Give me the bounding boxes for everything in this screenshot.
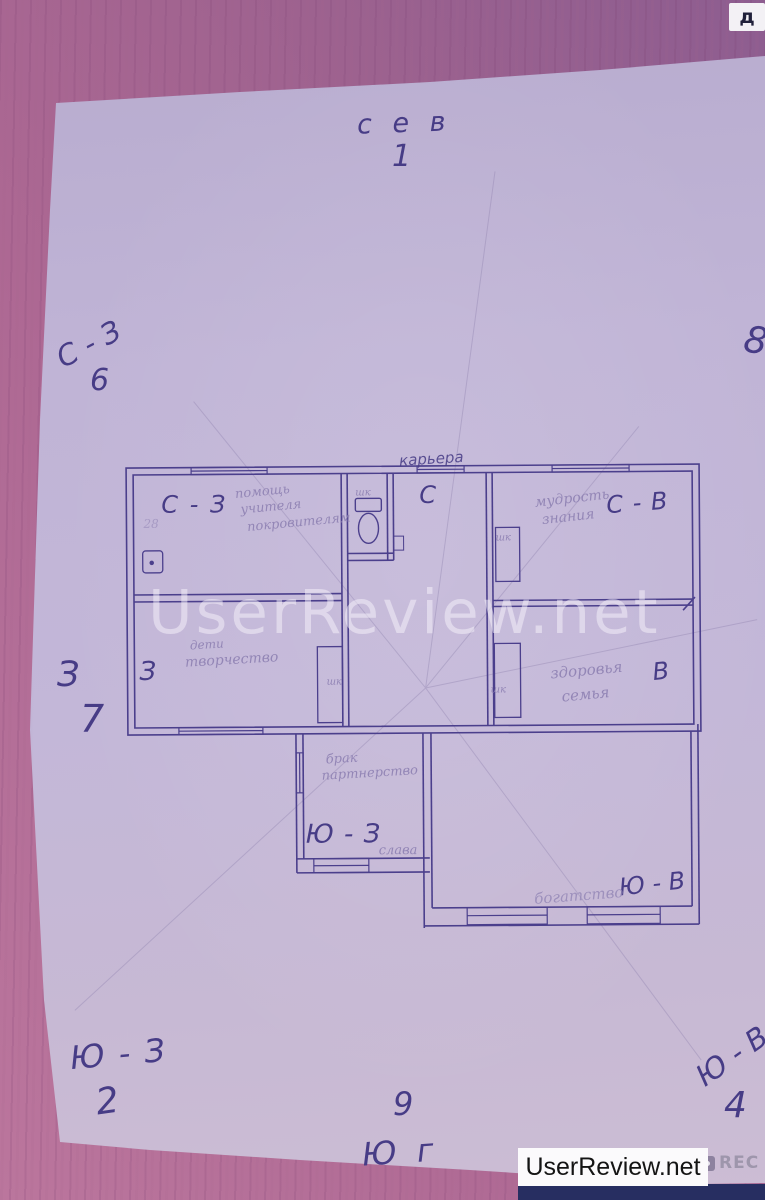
room-sw-sector: Ю - З (306, 819, 382, 850)
north-letter: С (419, 481, 436, 509)
compass-south-word: Ю г (361, 1133, 440, 1170)
career-label: карьера (399, 448, 465, 470)
room-ne-sector: С - В (605, 487, 669, 520)
compass-southeast-number: 4 (724, 1088, 747, 1124)
room-ne-meaning-2: знания (541, 506, 595, 528)
center-watermark: UserReview.net (148, 577, 661, 648)
room-e-meaning-1: здоровья (550, 658, 624, 683)
toilet-icon (355, 498, 381, 543)
room-e-sector: В (651, 656, 670, 686)
room-se-sector: Ю - В (618, 866, 687, 901)
corner-letter-box: д (729, 3, 765, 31)
room-e-meaning-2: семья (561, 683, 610, 705)
room-nw-note: 28 (142, 517, 159, 531)
compass-northwest-number: 6 (90, 366, 109, 396)
room-nw-sector: С - З (161, 490, 227, 518)
room-w-meaning-2: творчество (184, 649, 278, 671)
closet-label-bathroom: шк (355, 487, 371, 498)
closet-label-ne: шк (496, 532, 512, 543)
rec-label: REC (719, 1153, 759, 1173)
room-w-sector: З (139, 657, 156, 687)
closet-label-e: шк (491, 684, 507, 695)
photo-of-floor-plan: карьера С С - З помощь учителя покровите… (0, 0, 765, 1200)
room-sw-meaning-1: брак (325, 751, 358, 768)
compass-north-word: с е в (357, 108, 452, 138)
userreview-logo: UserReview.net (518, 1148, 708, 1186)
compass-south-number: 9 (393, 1088, 413, 1120)
room-se-meaning-1: богатство (534, 883, 624, 908)
room-sw-extra: слава (379, 843, 418, 858)
compass-west-word: З (57, 658, 79, 693)
rec-watermark: REC (700, 1153, 759, 1173)
compass-southwest-word: Ю - З (69, 1034, 168, 1074)
entry-door-icon (143, 551, 163, 573)
compass-north-number: 1 (392, 142, 411, 172)
userreview-logo-text: UserReview.net (525, 1153, 700, 1182)
bathroom-walls (347, 473, 394, 560)
room-ne-meaning-1: мудрость (534, 486, 610, 510)
compass-west-number: 7 (80, 700, 104, 738)
closet-label-w: шк (327, 677, 343, 688)
compass-southwest-number: 2 (94, 1083, 122, 1122)
bottom-navy-bar (518, 1184, 765, 1200)
hall-small-box (394, 536, 404, 550)
corner-letter: д (739, 6, 754, 28)
